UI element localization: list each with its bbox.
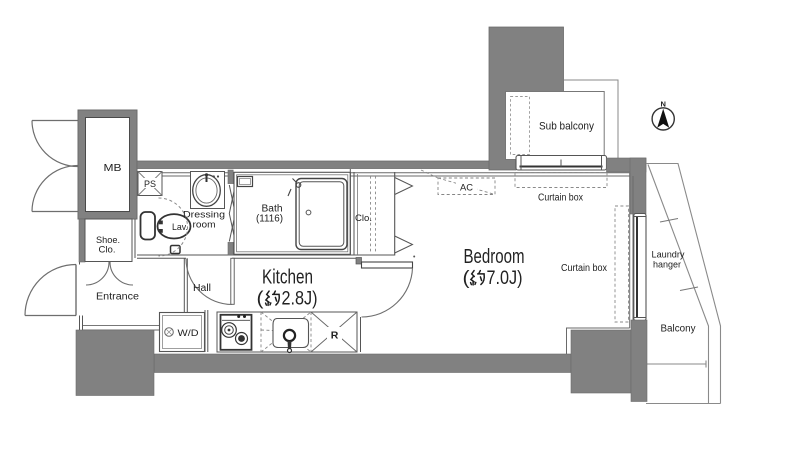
svg-text:Laundry: Laundry <box>652 250 685 260</box>
svg-text:Kitchen: Kitchen <box>262 267 313 289</box>
svg-text:Sub balcony: Sub balcony <box>539 121 595 133</box>
svg-text:hanger: hanger <box>653 260 681 270</box>
svg-text:7.0J): 7.0J) <box>487 268 523 289</box>
svg-text:MB: MB <box>104 162 122 174</box>
svg-text:N: N <box>660 100 665 109</box>
svg-text:Curtain box: Curtain box <box>561 263 607 274</box>
svg-text:2.8J): 2.8J) <box>282 289 318 310</box>
svg-text:Entrance: Entrance <box>96 292 139 303</box>
svg-text:(: ( <box>257 289 265 310</box>
svg-text:Bedroom: Bedroom <box>464 246 525 268</box>
svg-text:(1116): (1116) <box>256 214 283 225</box>
svg-text:room: room <box>193 220 216 231</box>
svg-text:Clo.: Clo. <box>99 245 116 255</box>
svg-text:AC: AC <box>460 183 474 193</box>
svg-text:Shoe.: Shoe. <box>96 235 120 245</box>
svg-text:W/D: W/D <box>178 328 199 338</box>
svg-text:Curtain box: Curtain box <box>538 193 583 204</box>
svg-text:Lav.: Lav. <box>172 222 188 233</box>
svg-text:PS: PS <box>144 179 156 190</box>
svg-text:Clo.: Clo. <box>355 213 372 223</box>
svg-text:R: R <box>331 330 339 342</box>
svg-text:Hall: Hall <box>193 283 211 294</box>
svg-text:Balcony: Balcony <box>661 324 696 335</box>
svg-text:(: ( <box>463 268 471 289</box>
